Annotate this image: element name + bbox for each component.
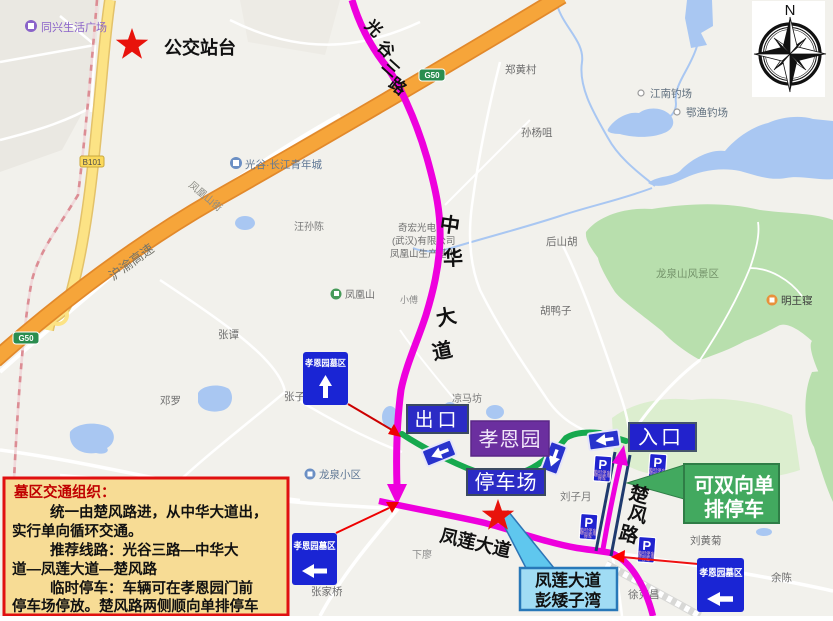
svg-text:孝恩园墓区: 孝恩园墓区 [293,540,337,551]
svg-text:刘黄菊: 刘黄菊 [690,534,722,547]
svg-text:孝恩园墓区: 孝恩园墓区 [699,567,743,579]
svg-text:公交站台: 公交站台 [164,37,236,58]
svg-text:可双向单: 可双向单 [694,473,774,497]
svg-text:龙泉小区: 龙泉小区 [319,468,361,481]
svg-text:龙泉山风景区: 龙泉山风景区 [656,267,719,280]
svg-text:孝恩园: 孝恩园 [479,428,542,451]
svg-text:停车场停放。楚风路两侧顺向单排停车: 停车场停放。楚风路两侧顺向单排停车 [12,597,259,615]
svg-text:鄂渔钓场: 鄂渔钓场 [686,106,728,119]
svg-text:奇宏光电: 奇宏光电 [398,222,437,234]
svg-text:推荐线路：光谷三路—中华大: 推荐线路：光谷三路—中华大 [50,541,239,559]
svg-text:华: 华 [443,246,464,271]
svg-text:张家桥: 张家桥 [311,585,343,598]
svg-text:彭矮子湾: 彭矮子湾 [535,590,602,610]
svg-text:凉马坊: 凉马坊 [452,392,482,405]
svg-text:邓罗: 邓罗 [160,395,181,407]
svg-text:统一由楚风路进，从中华大道出，: 统一由楚风路进，从中华大道出， [50,503,268,521]
svg-text:凤凰山: 凤凰山 [345,289,375,301]
svg-text:小傅: 小傅 [400,294,418,305]
svg-text:N: N [785,2,796,19]
svg-text:凤莲大道: 凤莲大道 [535,570,602,590]
svg-text:中: 中 [438,212,461,239]
svg-text:临时停车：车辆可在孝恩园门前: 临时停车：车辆可在孝恩园门前 [50,579,253,597]
svg-text:墓区交通组织：: 墓区交通组织： [13,483,116,501]
svg-text:道—凤莲大道—楚风路: 道—凤莲大道—楚风路 [12,560,157,578]
svg-text:后山胡: 后山胡 [546,235,578,248]
svg-text:江南钓场: 江南钓场 [650,87,692,100]
svg-text:汪孙陈: 汪孙陈 [294,220,324,233]
svg-text:孙杨咀: 孙杨咀 [521,126,553,139]
svg-text:排停车: 排停车 [704,497,764,521]
svg-text:实行单向循环交通。: 实行单向循环交通。 [12,522,143,540]
svg-text:下廖: 下廖 [412,548,432,561]
svg-text:停车场: 停车场 [475,471,538,494]
svg-text:孝恩园墓区: 孝恩园墓区 [304,358,347,368]
svg-text:余陈: 余陈 [771,571,792,584]
svg-text:光谷·长江青年城: 光谷·长江青年城 [245,158,322,171]
svg-text:张子: 张子 [284,391,305,403]
svg-text:明王寝: 明王寝 [781,294,813,307]
svg-text:刘子月: 刘子月 [560,491,592,503]
svg-text:张谭: 张谭 [218,329,239,341]
svg-text:胡鸭子: 胡鸭子 [540,304,572,317]
svg-text:G50: G50 [18,334,34,343]
svg-text:郑黄村: 郑黄村 [505,63,537,76]
svg-text:(武汉)有限公司: (武汉)有限公司 [392,235,455,247]
svg-text:B101: B101 [83,158,102,167]
svg-text:入口: 入口 [638,427,684,449]
svg-text:G50: G50 [424,71,440,80]
svg-text:出口: 出口 [414,409,460,431]
svg-text:同兴生活广场: 同兴生活广场 [41,20,107,34]
